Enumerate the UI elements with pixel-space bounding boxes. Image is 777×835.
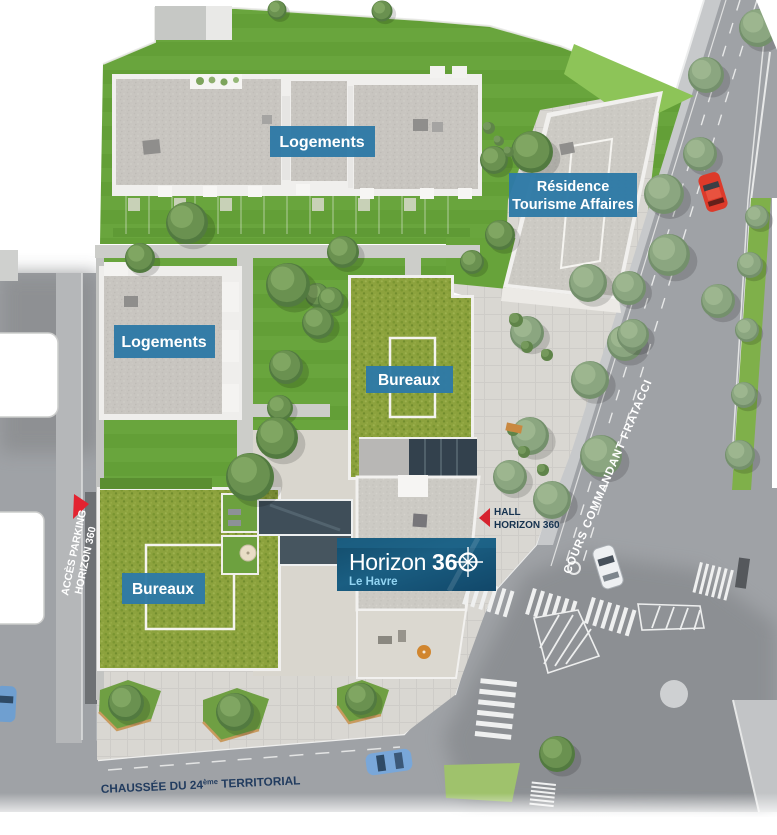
svg-text:Logements: Logements [279,134,364,151]
svg-text:Le Havre: Le Havre [349,576,398,588]
svg-text:Horizon: Horizon [349,549,426,575]
svg-text:36: 36 [432,549,458,575]
svg-text:HORIZON 360: HORIZON 360 [494,520,560,531]
svg-text:Tourisme Affaires: Tourisme Affaires [512,197,634,213]
svg-text:Résidence: Résidence [537,179,610,195]
svg-text:Logements: Logements [121,334,206,351]
svg-text:Bureaux: Bureaux [132,581,194,598]
svg-text:HALL: HALL [494,507,521,518]
svg-text:Bureaux: Bureaux [378,372,440,389]
